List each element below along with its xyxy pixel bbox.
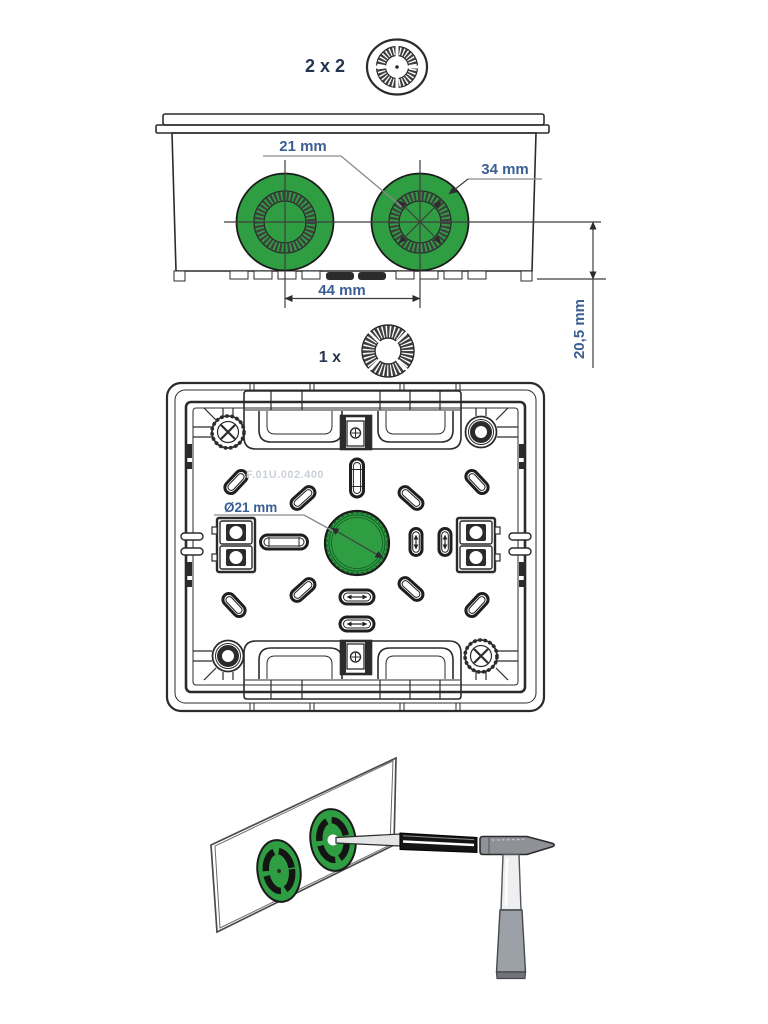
- dim-label-20-5mm: 20,5 mm: [571, 299, 588, 359]
- cable-grommet-icon: [367, 40, 427, 95]
- dim-label-44mm: 44 mm: [318, 282, 366, 299]
- hammer: [480, 837, 554, 979]
- box-back-view: F.01U.002.400 Ø21 mm: [167, 383, 544, 711]
- center-tab-dark: [326, 272, 354, 280]
- quantity-label-2x2: 2 x 2: [305, 56, 345, 76]
- sealing-ring-icon: [362, 325, 414, 377]
- side-clamp-right: [457, 518, 500, 572]
- installation-diagram: 2 x 2: [0, 0, 768, 1024]
- hammer-neck: [501, 855, 521, 911]
- corner-screw-hole-top-right: [466, 408, 519, 448]
- dimension-20-5mm: 20,5 mm: [537, 222, 606, 368]
- dim-label-34mm: 34 mm: [481, 161, 529, 178]
- dim-label-diameter-21mm: Ø21 mm: [224, 500, 277, 515]
- quantity-label-1x: 1 x: [319, 349, 341, 366]
- hammer-grip: [497, 910, 526, 972]
- hammer-grip-cap: [497, 972, 526, 979]
- dim-label-21mm: 21 mm: [279, 138, 327, 155]
- corner-boss-top-left: [193, 408, 244, 448]
- corner-screw-hole-bottom-left: [193, 641, 244, 681]
- top-tray: [244, 391, 461, 449]
- knockout-removal-illustration: [211, 758, 554, 979]
- center-tab-dark: [358, 272, 386, 280]
- dimension-34mm: 34 mm: [449, 161, 542, 194]
- diagram-page: 2 x 2: [0, 0, 768, 1024]
- part-number-watermark: F.01U.002.400: [246, 469, 324, 481]
- device-clamp-bottom: [341, 641, 371, 674]
- corner-boss-bottom-right: [465, 640, 518, 680]
- side-clamp-left: [212, 518, 255, 572]
- device-clamp-top: [341, 416, 371, 449]
- dimension-44mm: 44 mm: [285, 282, 420, 299]
- bottom-tray: [244, 641, 461, 699]
- center-knockout: [325, 511, 389, 575]
